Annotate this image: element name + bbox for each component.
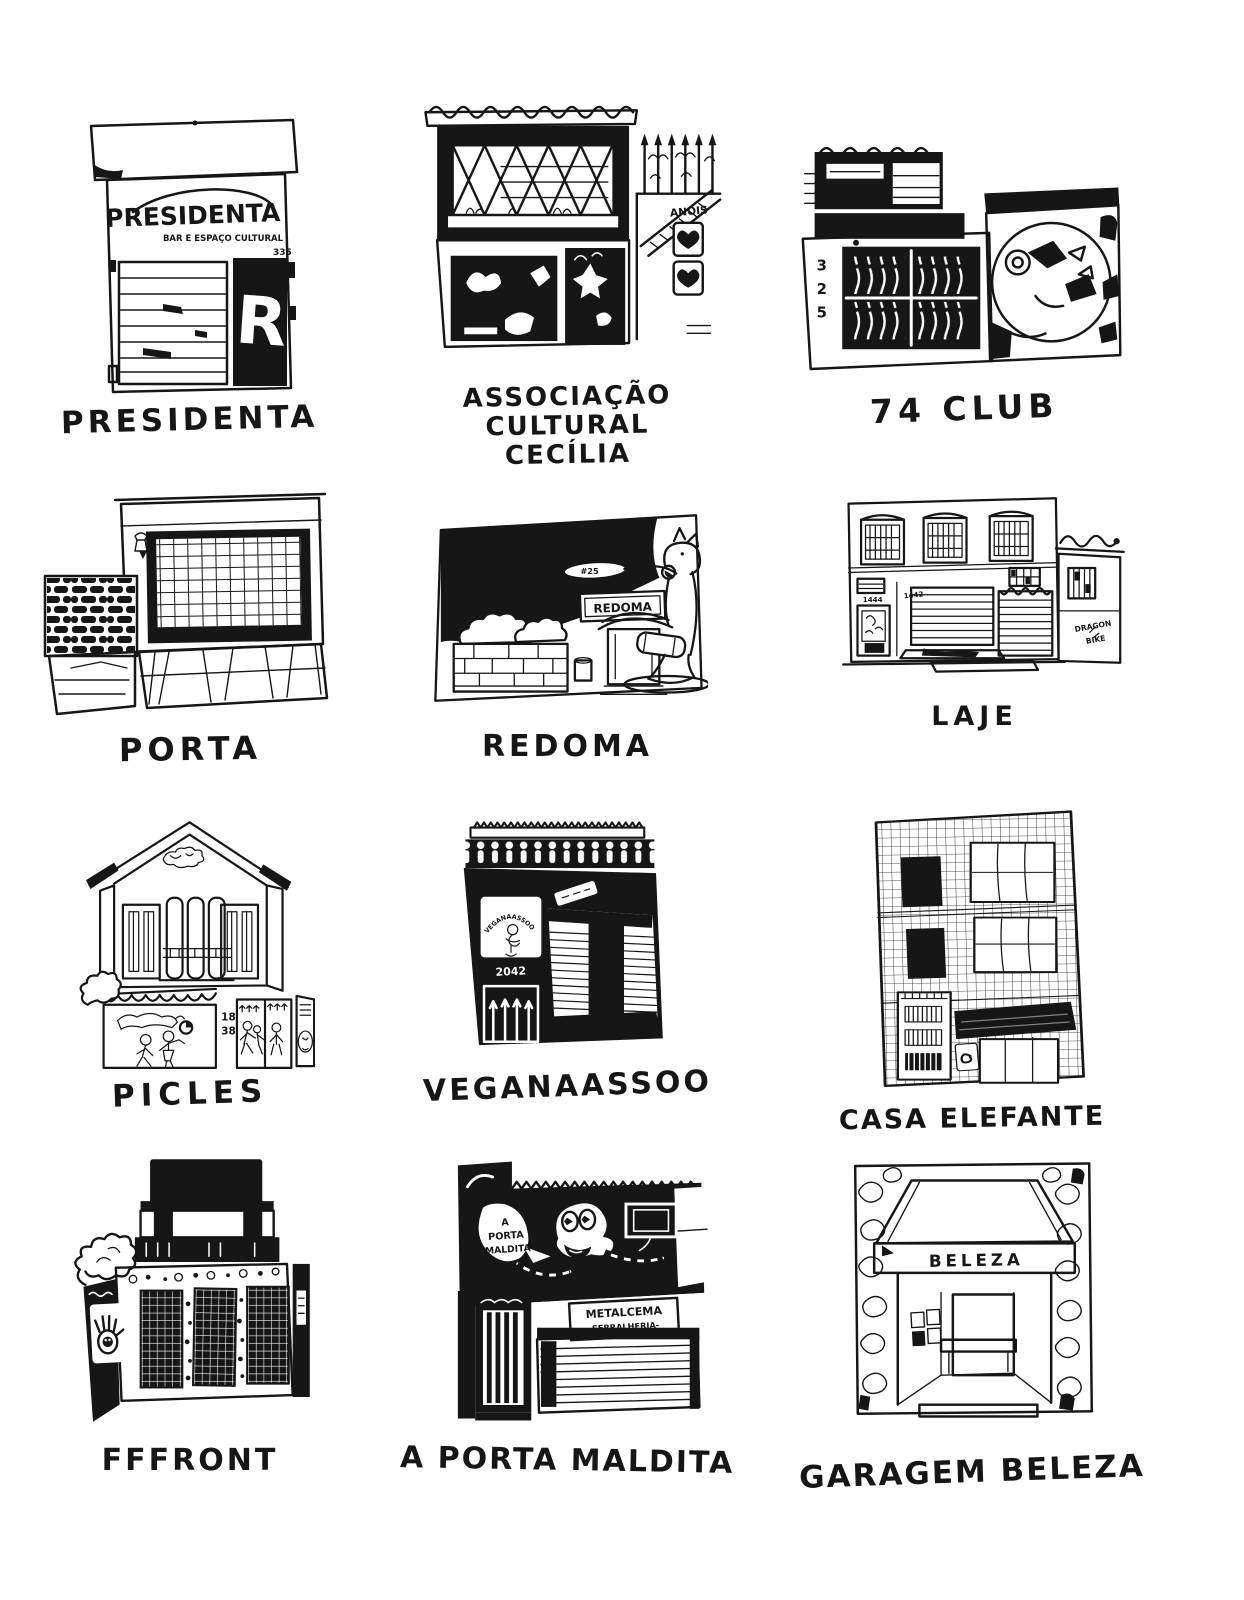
bar-gate <box>475 1291 531 1413</box>
porta-drawing <box>35 484 345 724</box>
door-step <box>919 1405 1037 1417</box>
74club-drawing: 3 2 5 <box>787 136 1142 383</box>
building-label: FFFRONT <box>102 1444 279 1478</box>
window-sill <box>446 215 619 229</box>
fridge-door <box>674 1187 709 1287</box>
building-label: 74 CLUB <box>870 388 1060 432</box>
stone-wall <box>858 1168 1080 1398</box>
forecourt <box>139 644 327 708</box>
building-label: PRESIDENTA <box>61 400 319 441</box>
anois-graffiti: ANOIS <box>669 203 708 219</box>
dots-row <box>129 1269 279 1284</box>
right-pillar <box>293 1264 310 1397</box>
lantern <box>135 533 147 559</box>
casa-elefante-drawing <box>845 796 1100 1096</box>
presidenta-sign-text: PRESIDENTA <box>105 198 282 233</box>
laje-drawing: 1444 1442 DRAGON <box>825 484 1125 694</box>
presidenta-sign-subtitle: BAR E ESPAÇO CULTURAL <box>163 234 284 244</box>
dark-window <box>900 856 942 907</box>
hand-poster <box>90 1303 125 1364</box>
panel-figures <box>240 1004 287 1055</box>
garagem-beleza-drawing: BELEZA <box>825 1147 1120 1447</box>
veganaassoo-number: 2042 <box>495 965 526 980</box>
gable-graffiti <box>163 847 204 867</box>
building-cell-veganaassoo: VEGANAASSOO 2042 VEGANAASSOO <box>380 790 755 1138</box>
brick-planter <box>453 644 567 692</box>
building-label: A PORTA MALDITA <box>400 1441 735 1480</box>
building-cell-garagem-beleza: BELEZA GARAGEM BELEZA <box>755 1138 1244 1600</box>
laje-door-number: 1444 <box>862 595 882 604</box>
picles-number-top: 18 <box>221 1012 236 1024</box>
building-label: GARAGEM BELEZA <box>799 1449 1146 1496</box>
veganaassoo-drawing: VEGANAASSOO 2042 <box>445 809 690 1062</box>
building-cell-porta: PORTA <box>0 472 380 790</box>
grid-window <box>146 529 312 644</box>
building-cell-fffront: FFFRONT <box>0 1138 380 1600</box>
small-sign <box>955 1043 979 1071</box>
building-label: PORTA <box>118 731 262 769</box>
picles-drawing: 18 38 <box>65 801 315 1069</box>
associacao-drawing: ANOIS <box>408 89 728 375</box>
bubble-line1: A <box>501 1217 510 1229</box>
redoma-number: #25 <box>580 566 599 576</box>
fffront-drawing <box>65 1146 315 1436</box>
building-cell-casa-elefante: CASA ELEFANTE <box>755 790 1244 1138</box>
building-cell-a-porta-maldita: A PORTA MALDITA <box>380 1138 755 1600</box>
street-number-digit: 3 <box>817 257 827 274</box>
building-label: LAJE <box>931 702 1018 732</box>
roof <box>90 823 288 888</box>
building-label: PICLES <box>111 1075 268 1115</box>
building-cell-laje: 1444 1442 DRAGON <box>755 472 1244 790</box>
roof-slab <box>150 1160 262 1206</box>
side-gate <box>49 652 135 714</box>
heart-posters <box>673 222 702 294</box>
picles-number-bottom: 38 <box>221 1026 236 1038</box>
street-number-digit: 2 <box>817 281 827 298</box>
awning-top <box>104 989 216 994</box>
building-cell-74club: 3 2 5 <box>755 0 1244 472</box>
tree-cloud <box>75 1234 136 1285</box>
shutter-right <box>998 591 1052 655</box>
ornate-gate <box>842 247 980 350</box>
building-label: ASSOCIAÇÃO CULTURAL CECÍLIA <box>380 379 755 472</box>
dark-door <box>589 922 624 1015</box>
dancers <box>118 1014 193 1069</box>
street-number-digit: 5 <box>817 305 827 322</box>
a-porta-maldita-drawing: A PORTA MALDITA <box>425 1146 710 1436</box>
presidenta-street-number: 335 <box>273 248 292 258</box>
roll-shutter <box>119 262 227 384</box>
building-cell-presidenta: PRESIDENTA BAR E ESPAÇO CULTURAL 335 R P… <box>0 0 380 472</box>
mural-dancers <box>104 1005 216 1068</box>
balustrade <box>465 840 654 869</box>
illustration-grid: PRESIDENTA BAR E ESPAÇO CULTURAL 335 R P… <box>0 0 1244 1600</box>
dark-window <box>905 928 945 979</box>
poster-letter: R <box>233 282 289 362</box>
left-column <box>458 1291 475 1419</box>
upper-windows <box>861 511 1033 564</box>
spiked-fence <box>636 133 719 193</box>
annex-roof <box>1055 548 1123 552</box>
grid-gates <box>141 1287 289 1388</box>
building-label: VEGANAASSOO <box>423 1065 713 1109</box>
balcony-doors <box>160 898 234 980</box>
dragon-bike-sign-line1: DRAGON <box>1073 618 1111 633</box>
presidenta-drawing: PRESIDENTA BAR E ESPAÇO CULTURAL 335 R <box>75 110 305 395</box>
awning-hood <box>876 1181 1073 1244</box>
building-label: CASA ELEFANTE <box>839 1101 1106 1136</box>
shuttered-windows <box>123 905 258 979</box>
vent <box>857 578 884 592</box>
slatted-tower <box>897 992 950 1079</box>
redoma-drawing: #25 REDOMA <box>428 506 708 722</box>
building-cell-picles: 18 38 PICLES <box>0 790 380 1138</box>
beleza-sign-text: BELEZA <box>928 1249 1023 1271</box>
building-cell-associacao: ANOIS ASSOCIAÇÃO CULTURAL CECÍLIA <box>380 0 755 472</box>
roller-shutter <box>537 1328 699 1413</box>
roof-snake <box>1060 536 1115 547</box>
building-cell-redoma: #25 REDOMA <box>380 472 755 790</box>
garage-interior <box>897 1273 1050 1405</box>
mural-right <box>565 248 625 345</box>
circle-mural <box>990 215 1119 359</box>
building-label: REDOMA <box>482 730 653 764</box>
